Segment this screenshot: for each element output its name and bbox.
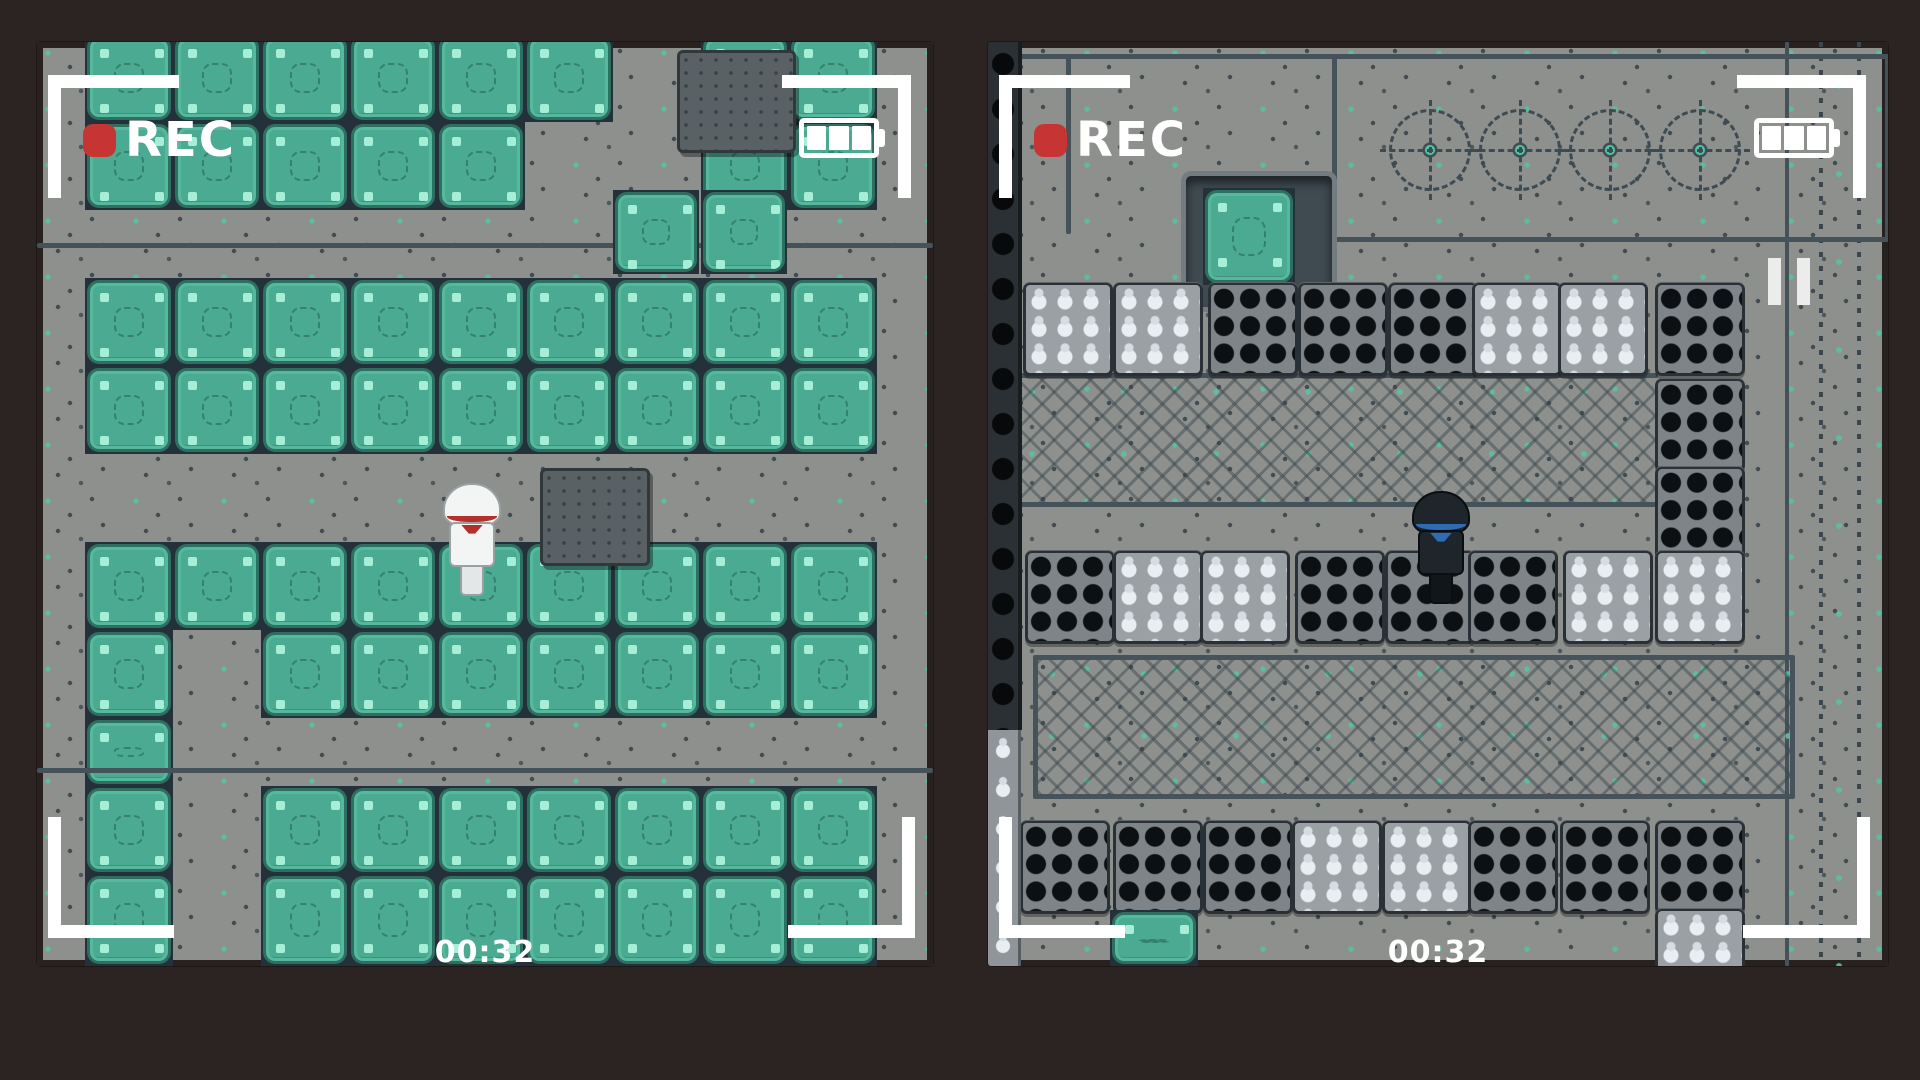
crate-black-holes — [1020, 820, 1110, 914]
crate-face — [1116, 823, 1200, 911]
green-tile-face — [703, 368, 787, 452]
green-tile-face — [263, 42, 347, 120]
green-tile-face — [263, 544, 347, 628]
crate-black-holes — [1025, 550, 1115, 644]
green-tile — [85, 786, 173, 874]
green-tile-face — [615, 632, 699, 716]
green-tile-face — [263, 280, 347, 364]
crate-black-holes — [1655, 378, 1745, 472]
green-tile-face — [615, 788, 699, 872]
green-tile — [349, 630, 437, 718]
green-tile-face — [351, 368, 435, 452]
green-tile-face — [263, 368, 347, 452]
crate-face — [1211, 285, 1295, 373]
green-tile-face — [791, 280, 875, 364]
green-tile — [85, 718, 173, 786]
green-tile-face — [439, 788, 523, 872]
crate-face — [1561, 285, 1645, 373]
green-tile — [789, 874, 877, 966]
green-tile — [349, 786, 437, 874]
green-tile-face — [703, 876, 787, 964]
green-tile — [85, 542, 173, 630]
crate-black-holes — [1388, 282, 1478, 376]
green-tile-face — [527, 876, 611, 964]
green-tile-face — [263, 876, 347, 964]
floor-seam-line — [37, 243, 933, 248]
green-tile-face — [351, 788, 435, 872]
green-tile — [613, 786, 701, 874]
character-white-trainer — [445, 485, 499, 595]
green-tile-face — [791, 632, 875, 716]
green-tile — [173, 278, 261, 366]
green-tile — [85, 366, 173, 454]
green-tile — [261, 874, 349, 966]
crate-face — [1563, 823, 1647, 911]
green-tile — [437, 874, 525, 966]
character-legs — [1431, 573, 1450, 602]
green-tile-face — [703, 280, 787, 364]
green-tile — [613, 190, 699, 274]
floor-seam-line — [37, 768, 933, 773]
green-tile — [613, 366, 701, 454]
crate-sacks — [1292, 820, 1382, 914]
green-tile — [789, 542, 877, 630]
green-tile — [173, 542, 261, 630]
crate-face — [1295, 823, 1379, 911]
green-tile-face — [439, 632, 523, 716]
green-tile-face — [703, 544, 787, 628]
green-tile-face — [791, 124, 875, 208]
green-tile-face — [791, 876, 875, 964]
green-tile-face — [87, 632, 171, 716]
green-tile-face — [263, 632, 347, 716]
floor-dial-pattern — [1389, 109, 1471, 191]
green-tile-face — [527, 368, 611, 452]
green-tile — [85, 630, 173, 718]
green-tile-face — [87, 280, 171, 364]
character-hat — [1414, 493, 1468, 533]
crate-sacks — [1655, 550, 1745, 644]
green-tile — [789, 278, 877, 366]
green-tile — [437, 122, 525, 210]
green-tile — [85, 874, 173, 966]
crate-sacks — [1558, 282, 1648, 376]
green-tile-face — [87, 876, 171, 964]
crate-sacks — [1113, 282, 1203, 376]
green-tile-face — [351, 42, 435, 120]
green-tile — [261, 42, 349, 122]
crate-sacks — [1382, 820, 1472, 914]
green-tile — [261, 786, 349, 874]
green-tile — [85, 278, 173, 366]
green-tile-face — [615, 876, 699, 964]
green-tile — [85, 122, 173, 210]
green-tile — [173, 122, 261, 210]
crate-sacks — [1023, 282, 1113, 376]
green-tile-face — [87, 124, 171, 208]
green-tile — [349, 42, 437, 122]
green-tile-face — [351, 632, 435, 716]
character-torso — [1420, 532, 1462, 574]
green-tile — [1203, 188, 1295, 285]
crate-black-holes — [1203, 820, 1293, 914]
crate-face — [1658, 469, 1742, 557]
crate-face — [1028, 553, 1112, 641]
green-tile — [789, 786, 877, 874]
green-tile — [789, 42, 877, 122]
crate-face — [1658, 553, 1742, 641]
green-tile — [349, 542, 437, 630]
green-tile-face — [439, 124, 523, 208]
green-tile-face — [263, 124, 347, 208]
green-tile — [789, 122, 877, 210]
green-tile-face — [175, 544, 259, 628]
crate-face — [1658, 823, 1742, 911]
green-tile — [701, 278, 789, 366]
crate-face — [1023, 823, 1107, 911]
green-tile — [437, 786, 525, 874]
green-tile-face — [791, 42, 875, 120]
crate-black-holes — [1208, 282, 1298, 376]
crate-face — [1658, 381, 1742, 469]
green-tile-face — [87, 42, 171, 120]
green-tile-face — [527, 632, 611, 716]
green-tile-face — [87, 720, 171, 784]
green-tile-face — [351, 876, 435, 964]
green-tile — [701, 190, 787, 274]
green-tile — [437, 366, 525, 454]
green-tile-face — [175, 368, 259, 452]
green-tile — [613, 630, 701, 718]
green-tile — [173, 42, 261, 122]
green-tile — [349, 366, 437, 454]
game-map-crate-warehouse — [988, 42, 1888, 966]
green-tile — [701, 786, 789, 874]
green-tile — [525, 42, 613, 122]
green-tile-face — [527, 788, 611, 872]
green-tile — [525, 874, 613, 966]
green-tile — [437, 630, 525, 718]
crate-sacks — [1200, 550, 1290, 644]
green-tile — [261, 366, 349, 454]
character-torso — [451, 524, 493, 566]
green-tile-face — [1205, 190, 1293, 283]
sack-block-strip — [988, 730, 1021, 966]
crate-face — [1116, 285, 1200, 373]
green-tile — [349, 278, 437, 366]
game-map-green-room — [37, 42, 933, 966]
crate-black-holes — [1298, 282, 1388, 376]
floor-seam-line — [1066, 58, 1071, 234]
green-tile — [261, 542, 349, 630]
crate-black-holes — [1655, 466, 1745, 560]
crate-black-holes — [1468, 550, 1558, 644]
green-tile — [701, 366, 789, 454]
wall-monitor — [677, 50, 796, 153]
green-tile — [261, 278, 349, 366]
crate-face — [1026, 285, 1110, 373]
crate-face — [1206, 823, 1290, 911]
green-tile — [437, 278, 525, 366]
crate-black-holes — [1113, 820, 1203, 914]
camera-view-2[interactable]: REC 00:32 — [988, 42, 1888, 966]
green-tile-face — [87, 368, 171, 452]
crate-black-holes — [1655, 282, 1745, 376]
green-tile-face — [703, 192, 785, 272]
green-tile-face — [439, 280, 523, 364]
crate-face — [1658, 911, 1742, 966]
character-legs — [462, 565, 481, 594]
green-tile-face — [263, 788, 347, 872]
crate-sacks — [1472, 282, 1562, 376]
green-tile — [261, 122, 349, 210]
green-tile — [173, 366, 261, 454]
crate-black-holes — [1468, 820, 1558, 914]
crate-face — [1203, 553, 1287, 641]
green-tile-face — [527, 42, 611, 120]
crate-black-holes — [1560, 820, 1650, 914]
green-tile — [261, 630, 349, 718]
crate-face — [1385, 823, 1469, 911]
character-dark-trainer — [1414, 493, 1468, 603]
green-tile-face — [87, 544, 171, 628]
green-tile-face — [175, 124, 259, 208]
floor-dial-pattern — [1659, 109, 1741, 191]
green-tile — [85, 42, 173, 122]
crate-face — [1566, 553, 1650, 641]
green-tile — [613, 278, 701, 366]
camera-view-1[interactable]: REC 00:32 — [37, 42, 933, 966]
crate-sacks — [1655, 908, 1745, 966]
green-tile-face — [791, 544, 875, 628]
green-tile — [1110, 910, 1198, 966]
floor-dial-pattern — [1479, 109, 1561, 191]
green-tile — [525, 278, 613, 366]
green-tile — [525, 630, 613, 718]
green-tile-face — [439, 876, 523, 964]
wall-monitor — [540, 468, 650, 566]
green-tile-face — [791, 368, 875, 452]
green-tile — [349, 122, 437, 210]
green-tile-face — [351, 124, 435, 208]
green-tile-face — [87, 788, 171, 872]
green-tile — [349, 874, 437, 966]
floor-dial-pattern — [1569, 109, 1651, 191]
green-tile — [437, 42, 525, 122]
crate-face — [1471, 553, 1555, 641]
patterned-rug — [1033, 655, 1795, 799]
green-tile-face — [703, 632, 787, 716]
crate-black-holes — [1655, 820, 1745, 914]
green-tile — [789, 366, 877, 454]
green-tile-face — [527, 280, 611, 364]
crate-face — [1391, 285, 1475, 373]
green-tile-face — [439, 42, 523, 120]
green-tile-face — [615, 368, 699, 452]
crate-black-holes — [1295, 550, 1385, 644]
green-tile-face — [615, 192, 697, 272]
green-tile-face — [703, 788, 787, 872]
crate-face — [1658, 285, 1742, 373]
green-tile — [789, 630, 877, 718]
character-hat — [445, 485, 499, 525]
green-tile-face — [439, 368, 523, 452]
crate-face — [1298, 553, 1382, 641]
green-tile — [701, 542, 789, 630]
dark-block-strip — [988, 42, 1022, 730]
green-tile-face — [351, 280, 435, 364]
crate-face — [1116, 553, 1200, 641]
crate-face — [1301, 285, 1385, 373]
green-tile-face — [1112, 912, 1196, 964]
green-tile — [701, 630, 789, 718]
green-tile — [613, 874, 701, 966]
green-tile — [525, 366, 613, 454]
green-tile-face — [175, 280, 259, 364]
crate-face — [1471, 823, 1555, 911]
crate-face — [1475, 285, 1559, 373]
crate-sacks — [1563, 550, 1653, 644]
green-tile-face — [351, 544, 435, 628]
patterned-band — [1018, 378, 1658, 502]
green-tile-face — [615, 280, 699, 364]
green-tile-face — [175, 42, 259, 120]
floor-seam-line — [1018, 502, 1658, 507]
green-tile — [525, 786, 613, 874]
green-tile — [701, 874, 789, 966]
green-tile-face — [791, 788, 875, 872]
crate-sacks — [1113, 550, 1203, 644]
